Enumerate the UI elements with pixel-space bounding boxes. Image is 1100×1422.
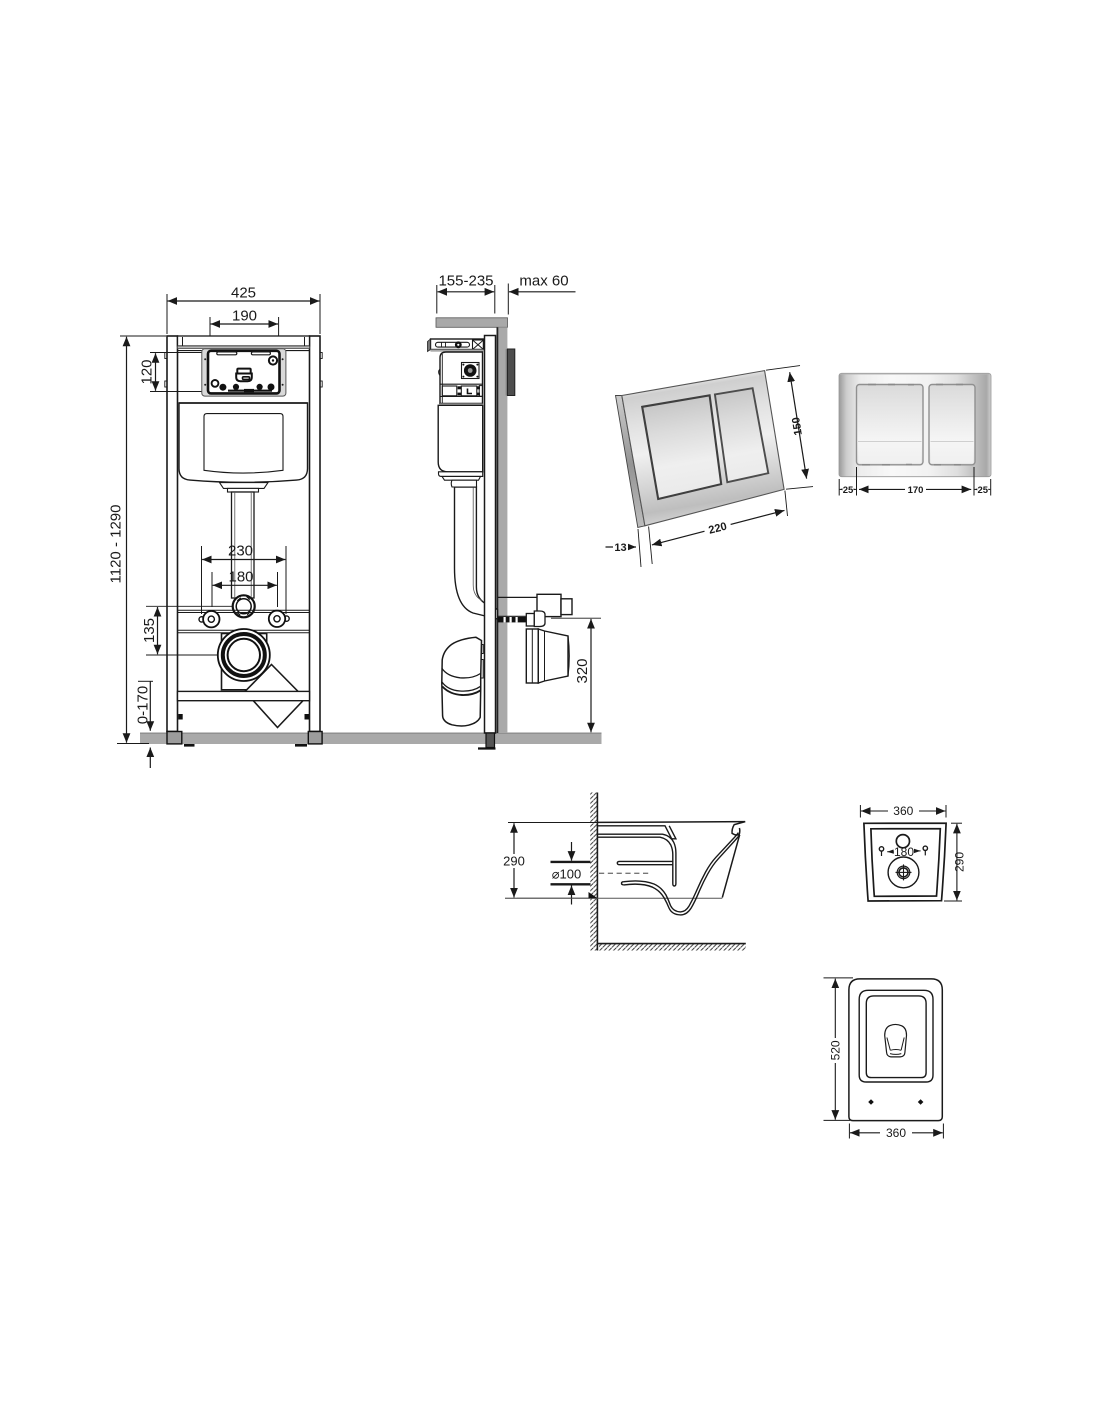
svg-text:425: 425 [231,285,256,302]
svg-text:360: 360 [886,1126,906,1140]
svg-text:max 60: max 60 [519,273,568,290]
svg-text:190: 190 [232,308,257,325]
svg-text:25: 25 [843,485,854,496]
svg-text:360: 360 [893,804,913,818]
svg-text:1120 - 1290: 1120 - 1290 [108,505,125,584]
svg-text:230: 230 [228,543,253,560]
svg-text:120: 120 [139,359,156,384]
svg-text:320: 320 [574,658,591,683]
svg-text:135: 135 [141,618,158,643]
svg-text:290: 290 [503,854,525,869]
svg-text:180: 180 [228,569,253,586]
svg-text:155-235: 155-235 [438,273,493,290]
svg-text:290: 290 [953,852,967,872]
svg-text:⌀100: ⌀100 [552,866,582,881]
svg-text:520: 520 [828,1040,842,1060]
svg-text:25: 25 [978,485,989,496]
svg-text:13: 13 [614,542,626,554]
svg-text:170: 170 [908,485,924,496]
svg-text:0-170: 0-170 [135,686,152,724]
